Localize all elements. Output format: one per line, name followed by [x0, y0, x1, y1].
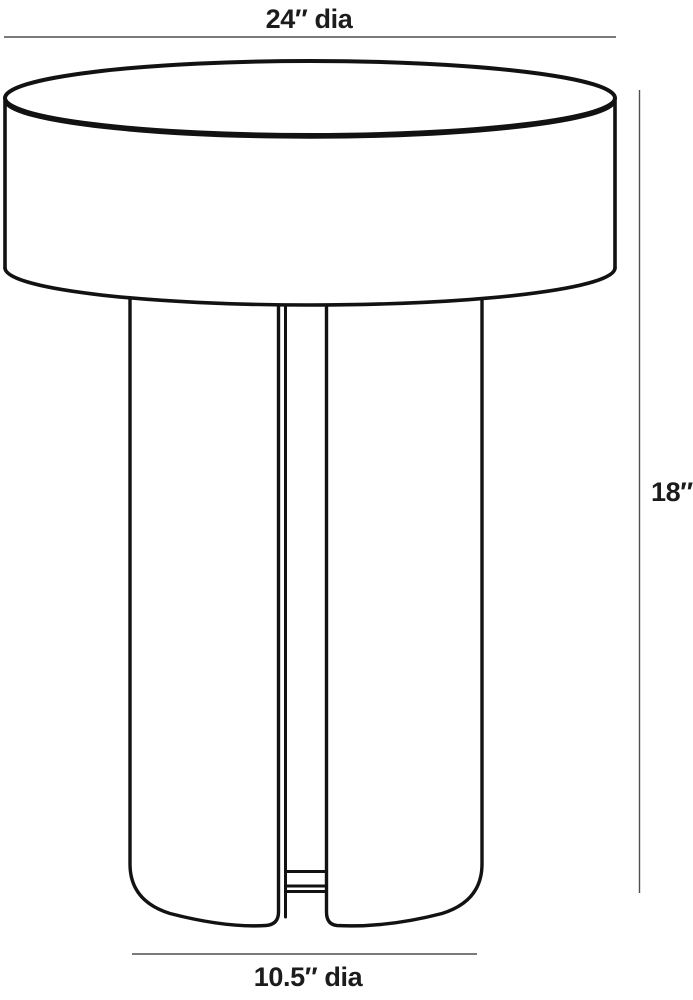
table-top-rim-lip	[6, 103, 614, 137]
dimension-diagram: 24″ dia 18″ 10.5″ dia	[0, 0, 693, 1000]
table-base-outline	[130, 299, 482, 926]
base-diameter-label: 10.5″ dia	[254, 964, 362, 991]
top-diameter-label: 24″ dia	[266, 6, 353, 33]
table-top-outline	[5, 61, 615, 305]
base-right-panel	[327, 299, 483, 926]
table-top-surface-ellipse	[5, 61, 615, 135]
table-line-drawing	[0, 0, 693, 1000]
height-label: 18″	[651, 479, 693, 506]
dimension-lines	[4, 37, 640, 954]
base-left-panel	[130, 299, 279, 926]
table-top-bottom-arc	[5, 268, 615, 305]
